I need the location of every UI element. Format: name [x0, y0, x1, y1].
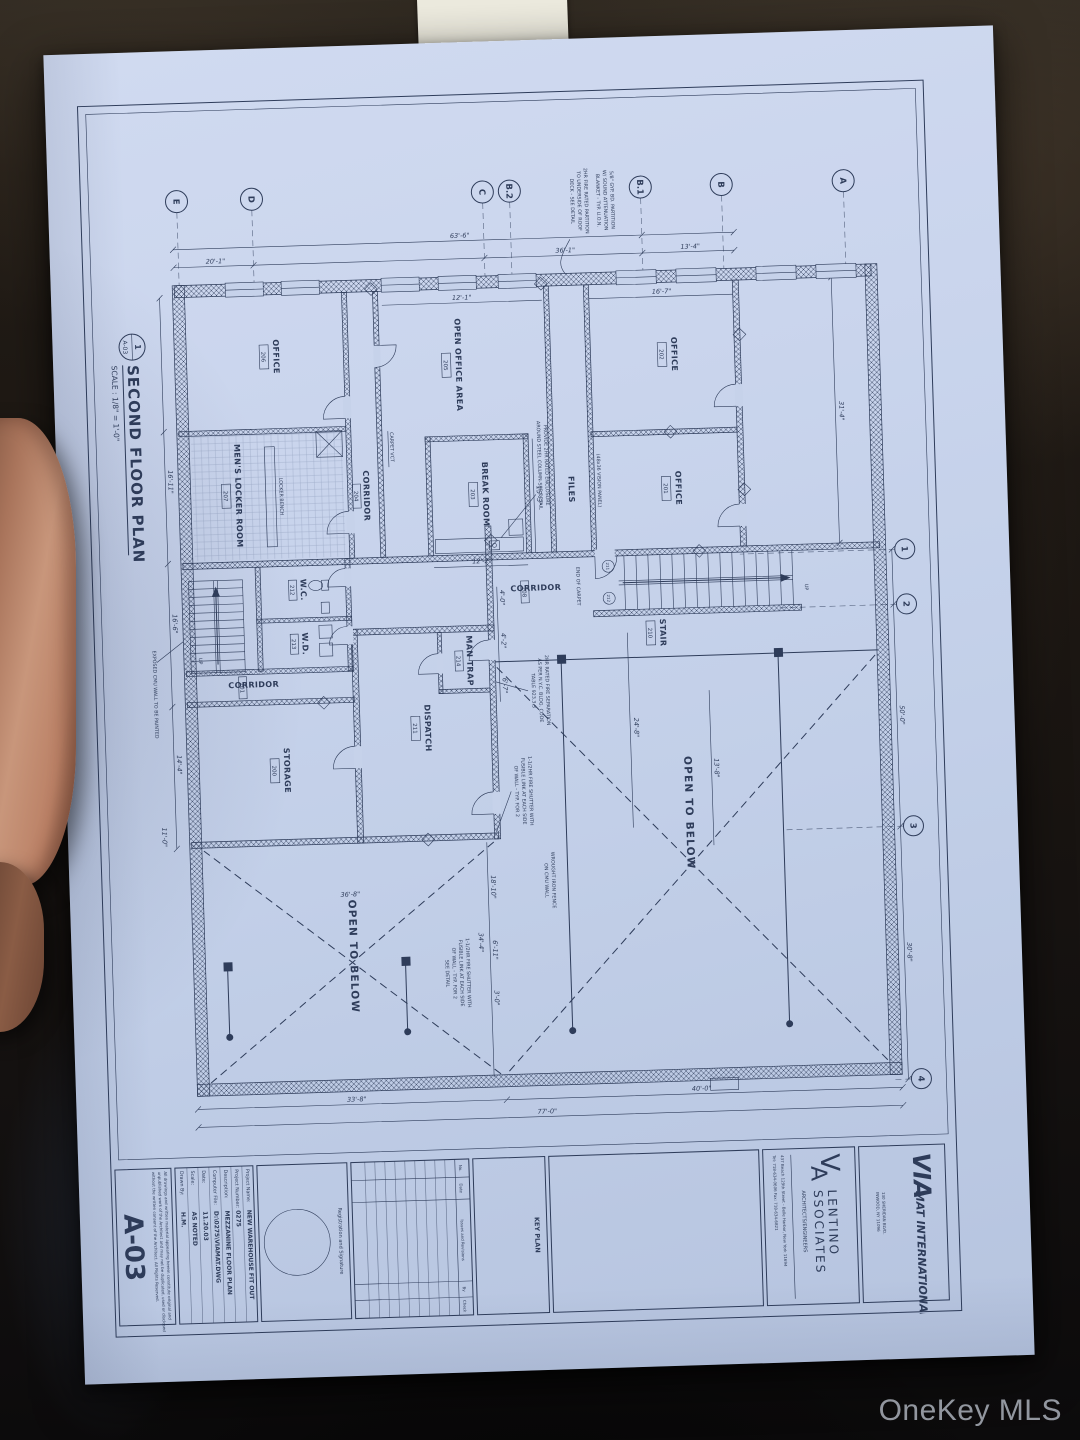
room-label: W.C. [298, 578, 308, 600]
grid-number: 3 [907, 822, 917, 828]
proj-value: D:\0275\VIAMAT.DWG [212, 1210, 221, 1282]
grid-letter: B.1 [634, 179, 644, 195]
grid-number: 4 [915, 1075, 925, 1081]
note: 1-1/2HR FIRE SHUTTER WITH [526, 755, 534, 825]
room-label: FILES [566, 475, 576, 502]
room-tag: 203 [468, 489, 474, 500]
room-tag: 208 [520, 586, 526, 597]
dim: 36'-8" [340, 890, 360, 899]
note: BLANKET - TYP. U.O.N. [593, 173, 601, 226]
grid-number: 1 [898, 545, 908, 551]
note: TABLE 923.3.3 [529, 672, 536, 708]
grid-letter: E [170, 198, 180, 204]
room-label: DISPATCH [422, 704, 432, 752]
room-label: OFFICE [668, 336, 678, 371]
room-tag: 201 [661, 483, 667, 494]
proj-label: Scale: [188, 1170, 194, 1185]
proj-label: Description: [221, 1169, 228, 1198]
dim: 16'-11" [165, 470, 174, 494]
dim: 12'-1" [451, 293, 471, 302]
proj-value: NEW WAREHOUSE FIT OUT [245, 1209, 255, 1300]
thumb [0, 418, 76, 886]
room-label: CORRIDOR [361, 470, 372, 521]
detail-marker-number: 1 [132, 344, 141, 350]
room-labels: OFFICE 206 OPEN OFFICE AREA 205 OFFICE 2… [216, 311, 700, 1016]
dim: 16'-7" [651, 287, 671, 296]
proj-value: 11.20.03 [201, 1211, 209, 1241]
room-label: CORRIDOR [510, 582, 561, 593]
proj-label: Computer File: [210, 1169, 217, 1205]
firm2-subtitle: ARCHITECTS/ENGINEERS [799, 1190, 807, 1252]
dim: 13'-8" [712, 758, 721, 778]
stair-egress: UP [188, 579, 245, 673]
room-label: BREAK ROOM [479, 461, 490, 526]
note: WROUGHT IRON FENCE [549, 851, 557, 908]
proj-label: Project Name: [243, 1168, 250, 1202]
blueprint-paper: A B B.1 B.2 C D E 1 2 3 4 13'-4" 36'- [43, 25, 1034, 1384]
rotated-drawing: A B B.1 B.2 C D E 1 2 3 4 13'-4" 36'- [75, 78, 963, 1339]
room-label: CORRIDOR [228, 679, 279, 690]
note: TO UNDERSIDE OF ROOF [574, 170, 582, 231]
stair-210: UP 211 212 [601, 549, 809, 609]
room-label: STAIR [657, 618, 667, 646]
title-block: VIA MAT INTERNATIONAL 130 SHERIDAN BLVD.… [114, 1143, 949, 1338]
room-tag: 200 [270, 765, 276, 776]
room-tag: 211 [410, 723, 416, 734]
dim: 4'-0" [497, 589, 505, 605]
dim: 18'-10" [488, 875, 497, 899]
note: 2HR FIRE RATED PARTITION [581, 167, 589, 233]
room-label: MAN TRAP [464, 635, 475, 686]
dim: 50'-0" [897, 705, 906, 725]
firm2-addr: 437 Beach 129th Street - Belle Harbor, N… [779, 1155, 788, 1267]
dim: 40'-0" [691, 1084, 711, 1093]
note: OF WALL - TYP. FOR 2 [512, 765, 520, 817]
rev-col: By [461, 1286, 466, 1292]
note: END OF CARPET [574, 566, 581, 605]
key-plan-label: KEY PLAN [532, 1216, 541, 1252]
dim: 13'-4" [680, 242, 700, 251]
dim: 30'-8" [905, 942, 914, 962]
proj-label: Date: [199, 1170, 205, 1184]
mls-watermark: OneKey MLS [879, 1394, 1062, 1428]
note: DECK - SEE DETAIL [567, 178, 574, 224]
plan-scale: SCALE : 1/8" = 1'-0" [109, 365, 120, 441]
room-label: STORAGE [281, 747, 291, 792]
note: SEE DETAIL [443, 959, 450, 987]
room-tag: 202 [657, 349, 663, 360]
dim: 6'-11" [490, 940, 499, 960]
note: OF WALL - TYP. FOR 2 [450, 947, 458, 999]
stair-up-label: UP [802, 583, 808, 590]
room-tag: 207 [221, 490, 227, 501]
room-label: OPEN TO BELOW [345, 899, 361, 1013]
firm2-name1: LENTINO [824, 1189, 840, 1256]
room-tag: 212 [288, 584, 294, 595]
proj-label: Project Number: [232, 1169, 239, 1208]
detail-marker-sheet: A-03 [120, 340, 127, 354]
rev-col: Check [462, 1299, 467, 1312]
room-tag: 205 [441, 359, 447, 370]
firm2-name2: SSOCIATES [810, 1189, 827, 1274]
plan-title: SECOND FLOOR PLAN [123, 364, 147, 563]
doors [320, 333, 756, 818]
door-tag: 211 [605, 562, 610, 570]
proj-label: Drawn By: [177, 1170, 184, 1195]
firm1-name: MAT INTERNATIONAL [912, 1190, 929, 1319]
dim: 11'-0" [160, 827, 169, 847]
room-tag: 206 [259, 351, 265, 362]
note: W/ SOUND ATTENUATION [600, 169, 608, 230]
grid-letter: C [476, 188, 486, 195]
note: 5/8" GYP. BD. PARTITION [607, 170, 615, 229]
firm1-addr1: 130 SHERIDAN BLVD. [880, 1191, 886, 1234]
firm2-phone: Tel: 718-634-0606 Fax: 718-634-6821 [771, 1154, 778, 1231]
note: EXPOSED CMU WALL TO BE PAINTED [150, 650, 159, 738]
dim: 14'-4" [174, 754, 183, 774]
grid-letter: B.2 [503, 183, 513, 199]
stair-up-label: UP [196, 657, 202, 664]
grid-letter: A [837, 177, 847, 184]
rev-col: No. [457, 1164, 462, 1171]
room-label: OPEN OFFICE AREA [452, 318, 464, 411]
dim: 33'-8" [346, 1095, 366, 1104]
note: ON CMU WALL [542, 863, 549, 898]
room-tag: 213 [289, 638, 295, 649]
dim: 63'-6" [449, 231, 469, 240]
dim: 20'-1" [205, 257, 225, 266]
dim: 31'-4" [837, 400, 846, 420]
rev-col: Date [458, 1183, 463, 1193]
room-label: W.D. [300, 632, 310, 655]
dim: 4'-2" [499, 632, 507, 648]
rev-col: Issues and Revisions [459, 1219, 465, 1260]
dim: 34'-4" [476, 932, 485, 952]
photo-of-floor-plan: A B B.1 B.2 C D E 1 2 3 4 13'-4" 36'- [0, 0, 1080, 1440]
note: (48x36 VISION PANEL) [594, 453, 602, 507]
room-label: OFFICE [673, 470, 683, 505]
sheet-number: A-03 [117, 1213, 149, 1281]
floor-plan-sheet: A B B.1 B.2 C D E 1 2 3 4 13'-4" 36'- [75, 78, 963, 1339]
room-tag: 214 [454, 655, 460, 666]
note: 1-1/2HR FIRE SHUTTER WITH [463, 938, 471, 1008]
proj-value: 0275 [234, 1210, 242, 1227]
registration-label: Registration and Signature [336, 1207, 344, 1274]
dim: 16'-6" [170, 614, 179, 634]
proj-value: MEZZANINE FLOOR PLAN [223, 1210, 233, 1295]
firm1-addr2: INWOOD, NY 11096 [874, 1192, 880, 1232]
dim: 77'-0" [537, 1107, 557, 1116]
dim: 3'-0" [492, 990, 500, 1006]
proj-value: AS NOTED [190, 1211, 198, 1246]
firm2-logo-a: A [805, 1165, 830, 1181]
drawing-title: 1 A-03 SECOND FLOOR PLAN SCALE : 1/8" = … [108, 333, 151, 563]
dim: 24'-8" [631, 717, 640, 737]
grid-letter: D [245, 195, 255, 202]
grid-letter: B [715, 181, 725, 188]
room-tag: 204 [352, 490, 358, 501]
room-label: OFFICE [270, 339, 280, 374]
room-label: OPEN TO BELOW [681, 755, 697, 869]
room-tag: 201 [238, 682, 244, 693]
door-tag: 212 [606, 594, 611, 602]
proj-value: H.M. [179, 1211, 186, 1227]
room-tag: 210 [646, 627, 652, 638]
grid-number: 2 [900, 600, 910, 606]
